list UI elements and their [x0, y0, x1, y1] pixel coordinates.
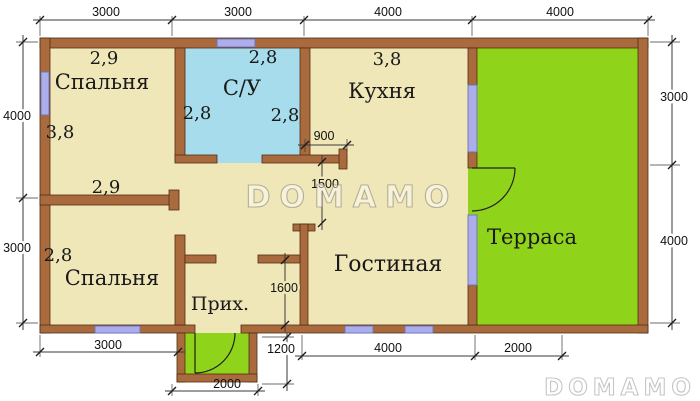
porch-door-gap [195, 325, 241, 333]
dim-top-1: 3000 [92, 5, 120, 19]
dim-porch-depth: 1200 [267, 342, 295, 356]
wall-bathroom-bottom-left [175, 155, 217, 163]
dim-bottom-1: 3000 [94, 338, 122, 352]
bedroom2-label: Спальня [65, 266, 160, 290]
kitchen-width-label: 3,8 [373, 49, 402, 70]
window-bedroom1-left [41, 72, 49, 115]
wall-divider-cap [169, 190, 179, 210]
dim-bottom-3: 2000 [504, 341, 532, 355]
hall-label: Прих. [191, 293, 249, 315]
living-label: Гостиная [334, 252, 443, 277]
bathroom-door-gap [217, 155, 262, 163]
wall-hall-living [300, 224, 308, 325]
dim-left-1: 4000 [3, 109, 31, 123]
dim-right-1: 3000 [660, 90, 688, 104]
bathroom-right-label: 2,8 [271, 105, 300, 126]
wall-terrace-mid [468, 152, 477, 168]
bathroom-label: С/У [223, 76, 261, 100]
wall-terrace-upper [468, 48, 477, 85]
wall-bedroom2-hall [175, 235, 185, 325]
bedroom2-height-label: 2,8 [44, 245, 73, 266]
window-bedroom2-bottom [95, 326, 140, 333]
wall-kitchen-bottom [262, 155, 347, 163]
wall-exterior-bottom-right [241, 325, 648, 333]
wall-hall-north-left [185, 255, 216, 263]
bathroom-top-label: 2,8 [249, 47, 278, 68]
bedroom2-width-label: 2,9 [92, 177, 121, 198]
terrace-door-gap [468, 168, 477, 215]
dim-top-2: 3000 [224, 5, 252, 19]
wall-kitchen-stub-cap [339, 149, 347, 169]
wall-exterior-top [40, 38, 648, 48]
dim-top-4: 4000 [546, 5, 574, 19]
window-living-bottom-2 [405, 326, 433, 333]
dim-porch-width: 2000 [213, 377, 241, 391]
bedroom1-label: Спальня [55, 70, 150, 94]
bedroom1-height-label: 3,8 [46, 122, 75, 143]
window-living-bottom-1 [345, 326, 373, 333]
floor-plan-page: 3000 3000 4000 4000 4000 3000 3000 4000 … [0, 0, 700, 401]
watermark-bottom-right: DOMAMO [544, 375, 696, 401]
wall-terrace-lower [468, 285, 477, 325]
wall-hall-north-right [258, 255, 300, 263]
window-bathroom-top [217, 39, 255, 47]
bathroom-floor [185, 48, 300, 155]
dim-opening-1600: 1600 [270, 281, 298, 295]
floor-plan-drawing: 3000 3000 4000 4000 4000 3000 3000 4000 … [0, 0, 700, 401]
watermark-center: DOMAMO [246, 180, 459, 215]
bedroom1-width-label: 2,9 [90, 48, 119, 69]
kitchen-label: Кухня [348, 79, 416, 103]
dim-bottom-2: 4000 [374, 341, 402, 355]
window-kitchen-terrace [468, 85, 477, 152]
dim-left-2: 3000 [3, 241, 31, 255]
bathroom-left-label: 2,8 [183, 103, 212, 124]
dim-right-2: 4000 [660, 234, 688, 248]
wall-exterior-right [638, 38, 648, 333]
dim-opening-900: 900 [314, 129, 335, 143]
window-living-terrace [468, 215, 477, 285]
terrace-label: Терраса [487, 225, 577, 249]
terrace-floor [477, 48, 638, 325]
dim-top-3: 4000 [374, 5, 402, 19]
